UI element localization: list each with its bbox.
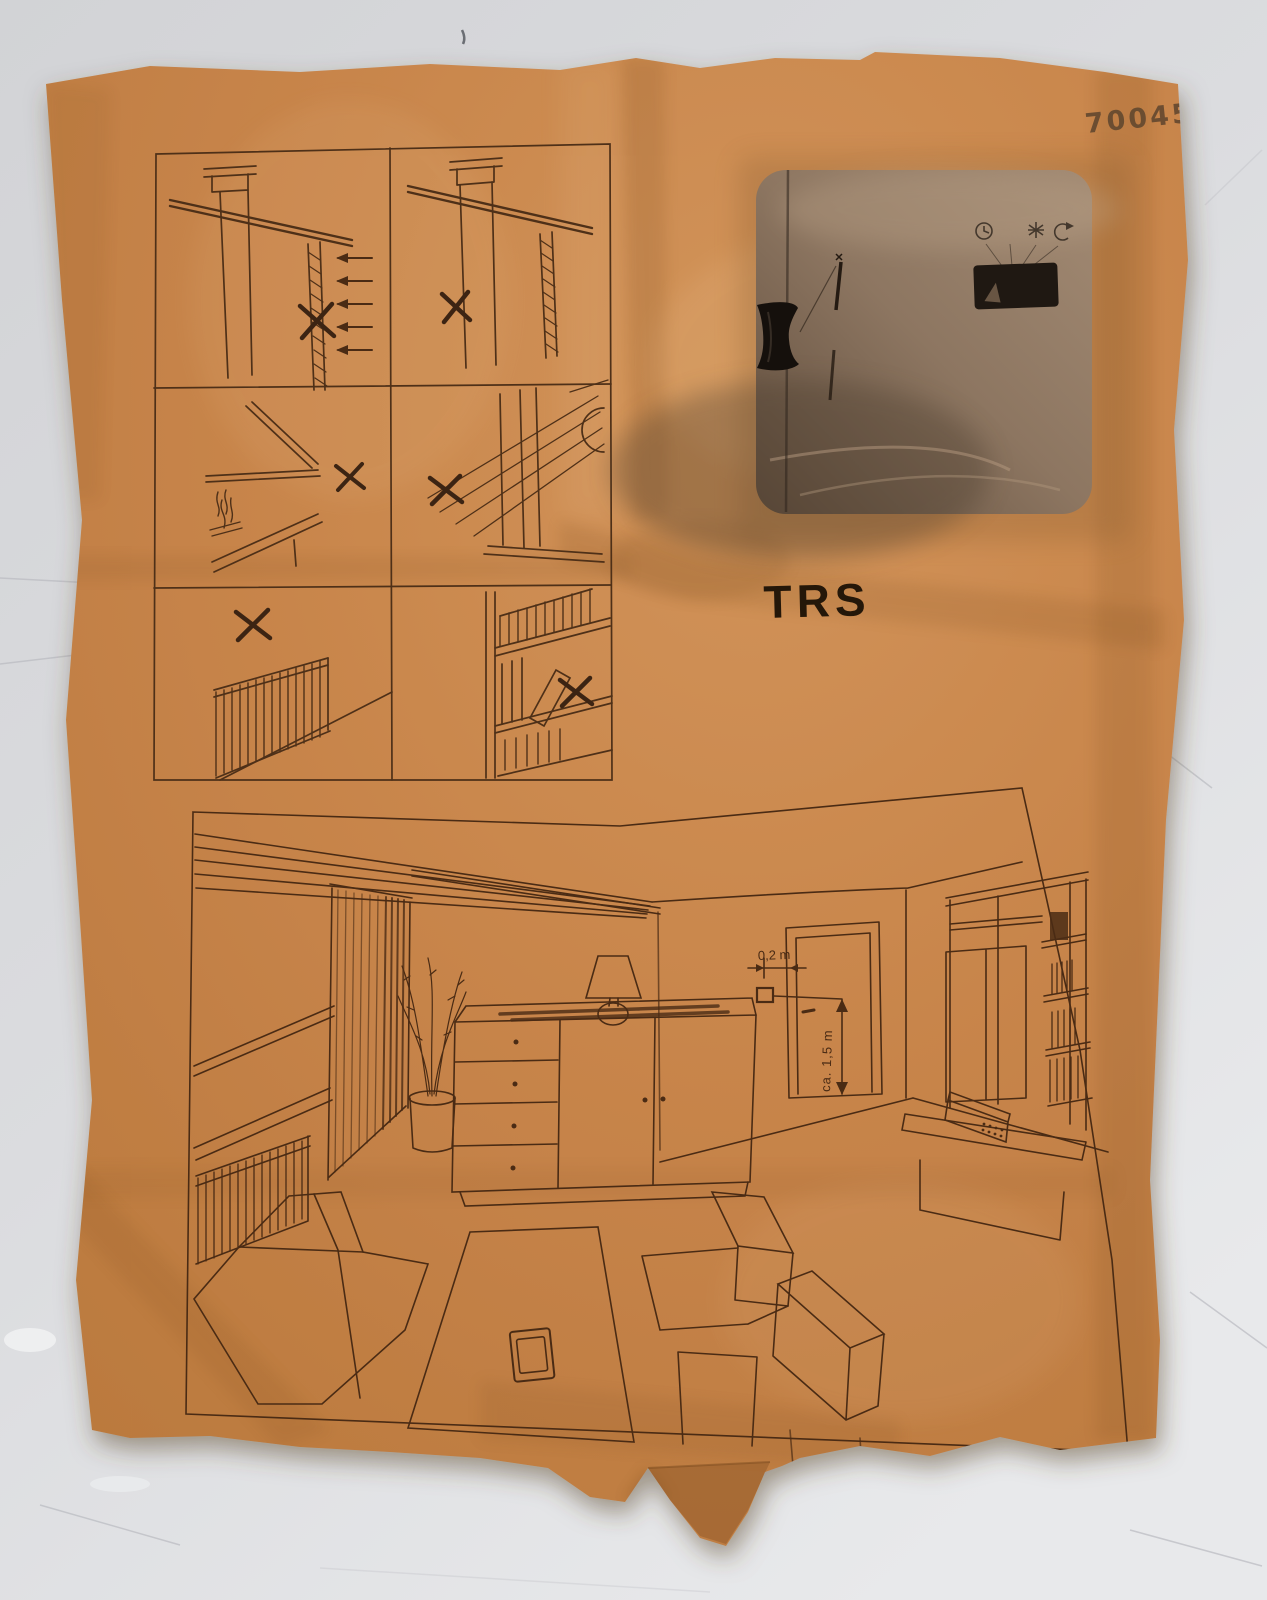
door-handle <box>803 1010 814 1012</box>
mode-switch <box>973 263 1058 310</box>
height-label: ca. 1,5 m <box>818 1029 835 1092</box>
surface-scuff <box>4 1328 56 1352</box>
surface-scuff <box>90 1476 150 1492</box>
model-label: TRS <box>763 573 871 628</box>
offset-label: 0,2 m <box>758 947 791 963</box>
photo-of-instruction-leaflet: 70045 TRS <box>0 0 1267 1600</box>
book <box>1050 912 1068 940</box>
